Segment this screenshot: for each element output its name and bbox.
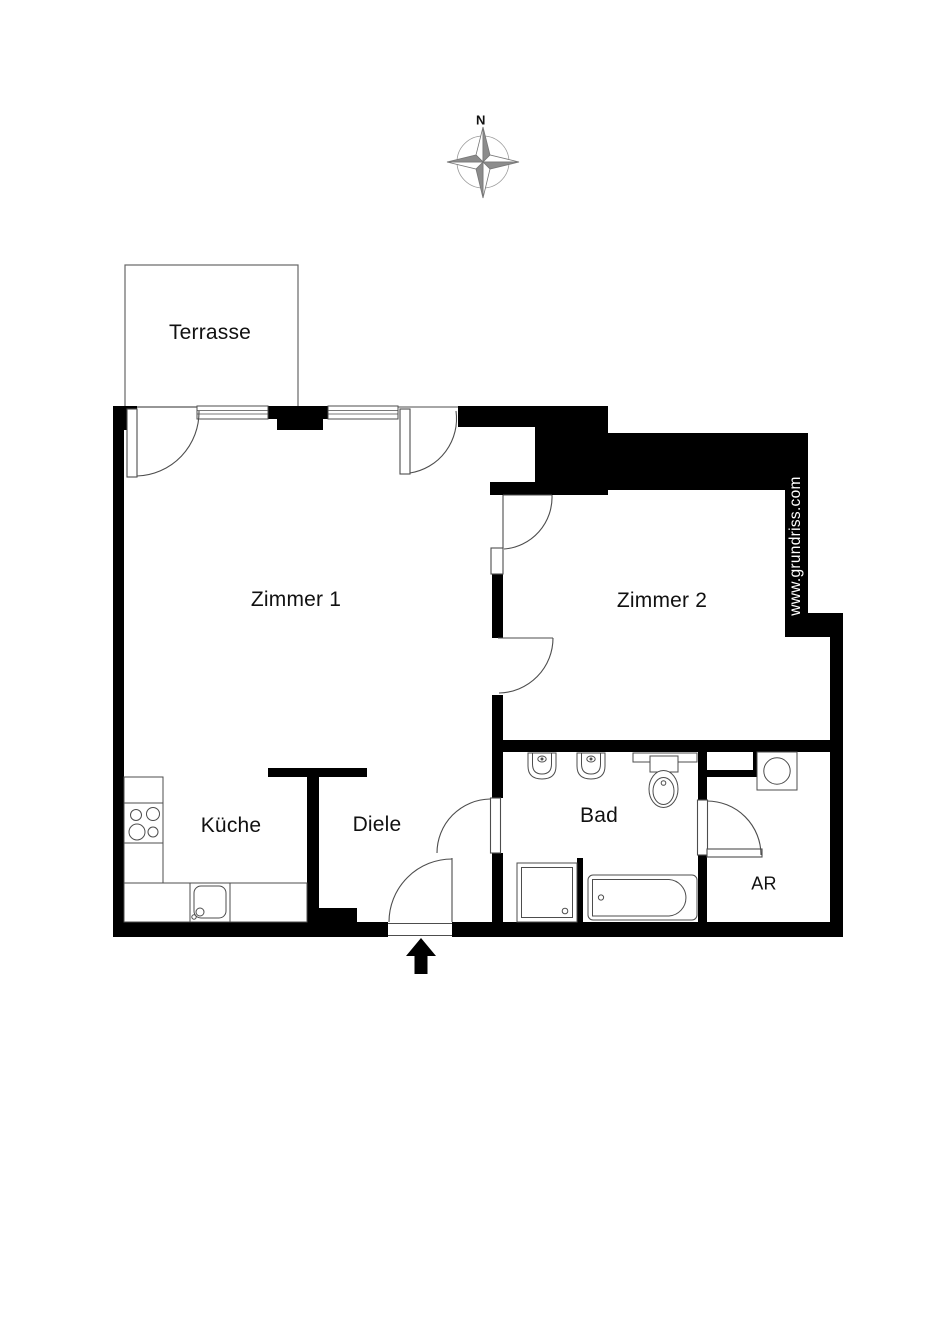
toilet-icon — [649, 756, 678, 808]
entrance-arrow-icon — [406, 938, 436, 974]
room-label-terrasse: Terrasse — [169, 321, 251, 345]
compass-rose-icon — [447, 127, 519, 198]
zimmer2-door-upper — [491, 495, 552, 574]
ar-door — [698, 800, 763, 857]
room-label-ar: AR — [751, 874, 776, 895]
washing-machine-icon — [757, 752, 797, 790]
room-label-diele: Diele — [353, 813, 402, 837]
floor-plan-drawing — [0, 0, 940, 1333]
room-label-zimmer1: Zimmer 1 — [251, 588, 341, 612]
bathtub-icon — [588, 875, 697, 920]
zimmer2-door-lower — [498, 638, 553, 693]
room-label-zimmer2: Zimmer 2 — [617, 589, 707, 613]
terrace-door-right — [400, 409, 457, 474]
washbasin-icon — [528, 753, 556, 779]
window-icon — [197, 406, 268, 419]
watermark-text: www.grundriss.com — [787, 461, 805, 631]
bathroom-fixtures — [517, 752, 797, 922]
compass-north-label: N — [476, 113, 486, 128]
room-label-kueche: Küche — [201, 814, 262, 838]
window-icon — [328, 406, 398, 419]
terrace-door-left — [127, 409, 199, 477]
room-label-bad: Bad — [580, 804, 618, 828]
floor-plan: N Terrasse Zimmer 1 Zimmer 2 Küche Diele… — [0, 0, 940, 1333]
entrance-door — [388, 858, 452, 937]
kitchen-fixtures — [124, 777, 307, 922]
shower-icon — [517, 863, 577, 922]
washbasin-icon — [577, 753, 605, 779]
bad-door — [437, 798, 501, 853]
